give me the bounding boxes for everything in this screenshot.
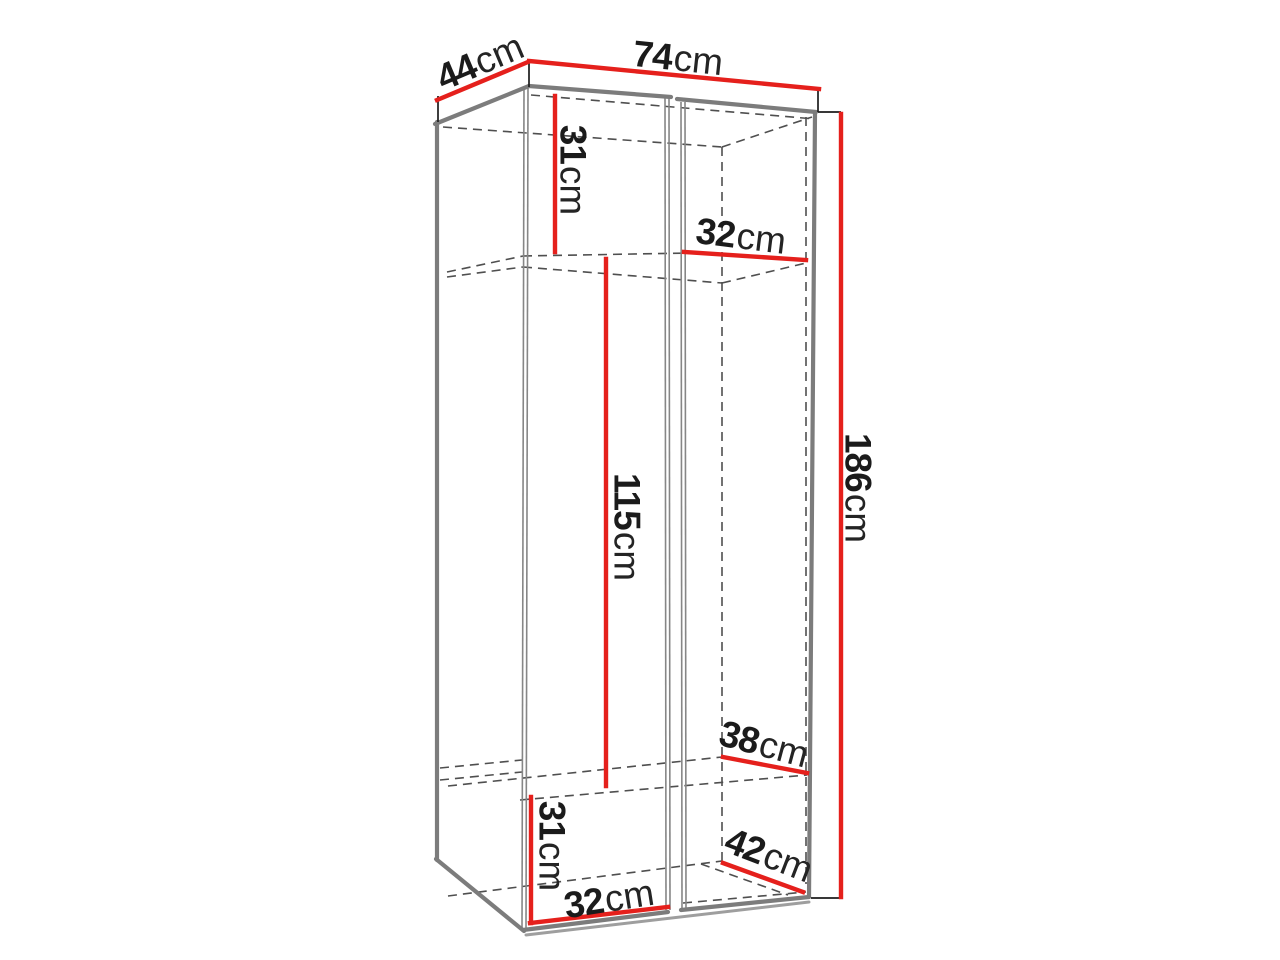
dimension-label-lower-section-height: 31cm — [534, 801, 571, 891]
upper-shelf-left-top — [447, 256, 523, 272]
dimension-unit: cm — [838, 494, 879, 543]
wardrobe-dimension-diagram: 44cm 74cm 31cm 32cm 115cm 186cm 38cm 31c… — [0, 0, 1280, 960]
lower-shelf-back-edge — [448, 757, 722, 786]
dimension-unit: cm — [602, 872, 657, 920]
upper-shelf-back-edge — [523, 267, 722, 283]
front-right-edge — [809, 113, 815, 897]
right-door-left-edge-outer — [681, 102, 682, 909]
dimension-label-total-height: 186cm — [840, 433, 877, 543]
dimension-value: 32 — [694, 210, 738, 255]
dimension-label-top-width: 74cm — [631, 35, 725, 81]
left-door-top-edge — [529, 86, 671, 97]
left-door-left-edge-outer — [522, 88, 524, 929]
lower-shelf-front-edge — [520, 775, 807, 800]
dimension-value: 115 — [607, 473, 648, 530]
right-door-left-edge-inner — [685, 102, 686, 909]
left-door-right-edge-inner — [665, 98, 666, 910]
upper-shelf-right-depth — [722, 263, 806, 283]
dimension-value: 31 — [532, 801, 573, 840]
left-door-right-edge-outer — [669, 98, 670, 910]
top-right-depth-edge — [722, 117, 812, 147]
right-door-top-edge — [677, 99, 816, 112]
dimension-unit: cm — [607, 532, 648, 581]
dimension-label-upper-section-height: 31cm — [555, 125, 592, 215]
left-door-left-edge-inner — [526, 88, 528, 929]
dimension-unit: cm — [553, 166, 594, 215]
dimension-unit: cm — [734, 215, 788, 262]
dimension-value: 74 — [631, 33, 674, 78]
upper-shelf-left-bottom — [447, 267, 523, 277]
dimension-value: 31 — [553, 125, 594, 164]
dimension-label-upper-shelf-depth: 32cm — [694, 212, 788, 260]
dimension-label-middle-section-height: 115cm — [609, 473, 646, 581]
dimension-value: 186 — [838, 433, 879, 492]
side-panel-bottom-edge — [436, 859, 524, 931]
lower-shelf-left-top — [440, 760, 522, 768]
dimension-unit: cm — [532, 842, 573, 891]
dimension-unit: cm — [672, 37, 725, 83]
dimension-value: 32 — [561, 880, 606, 927]
